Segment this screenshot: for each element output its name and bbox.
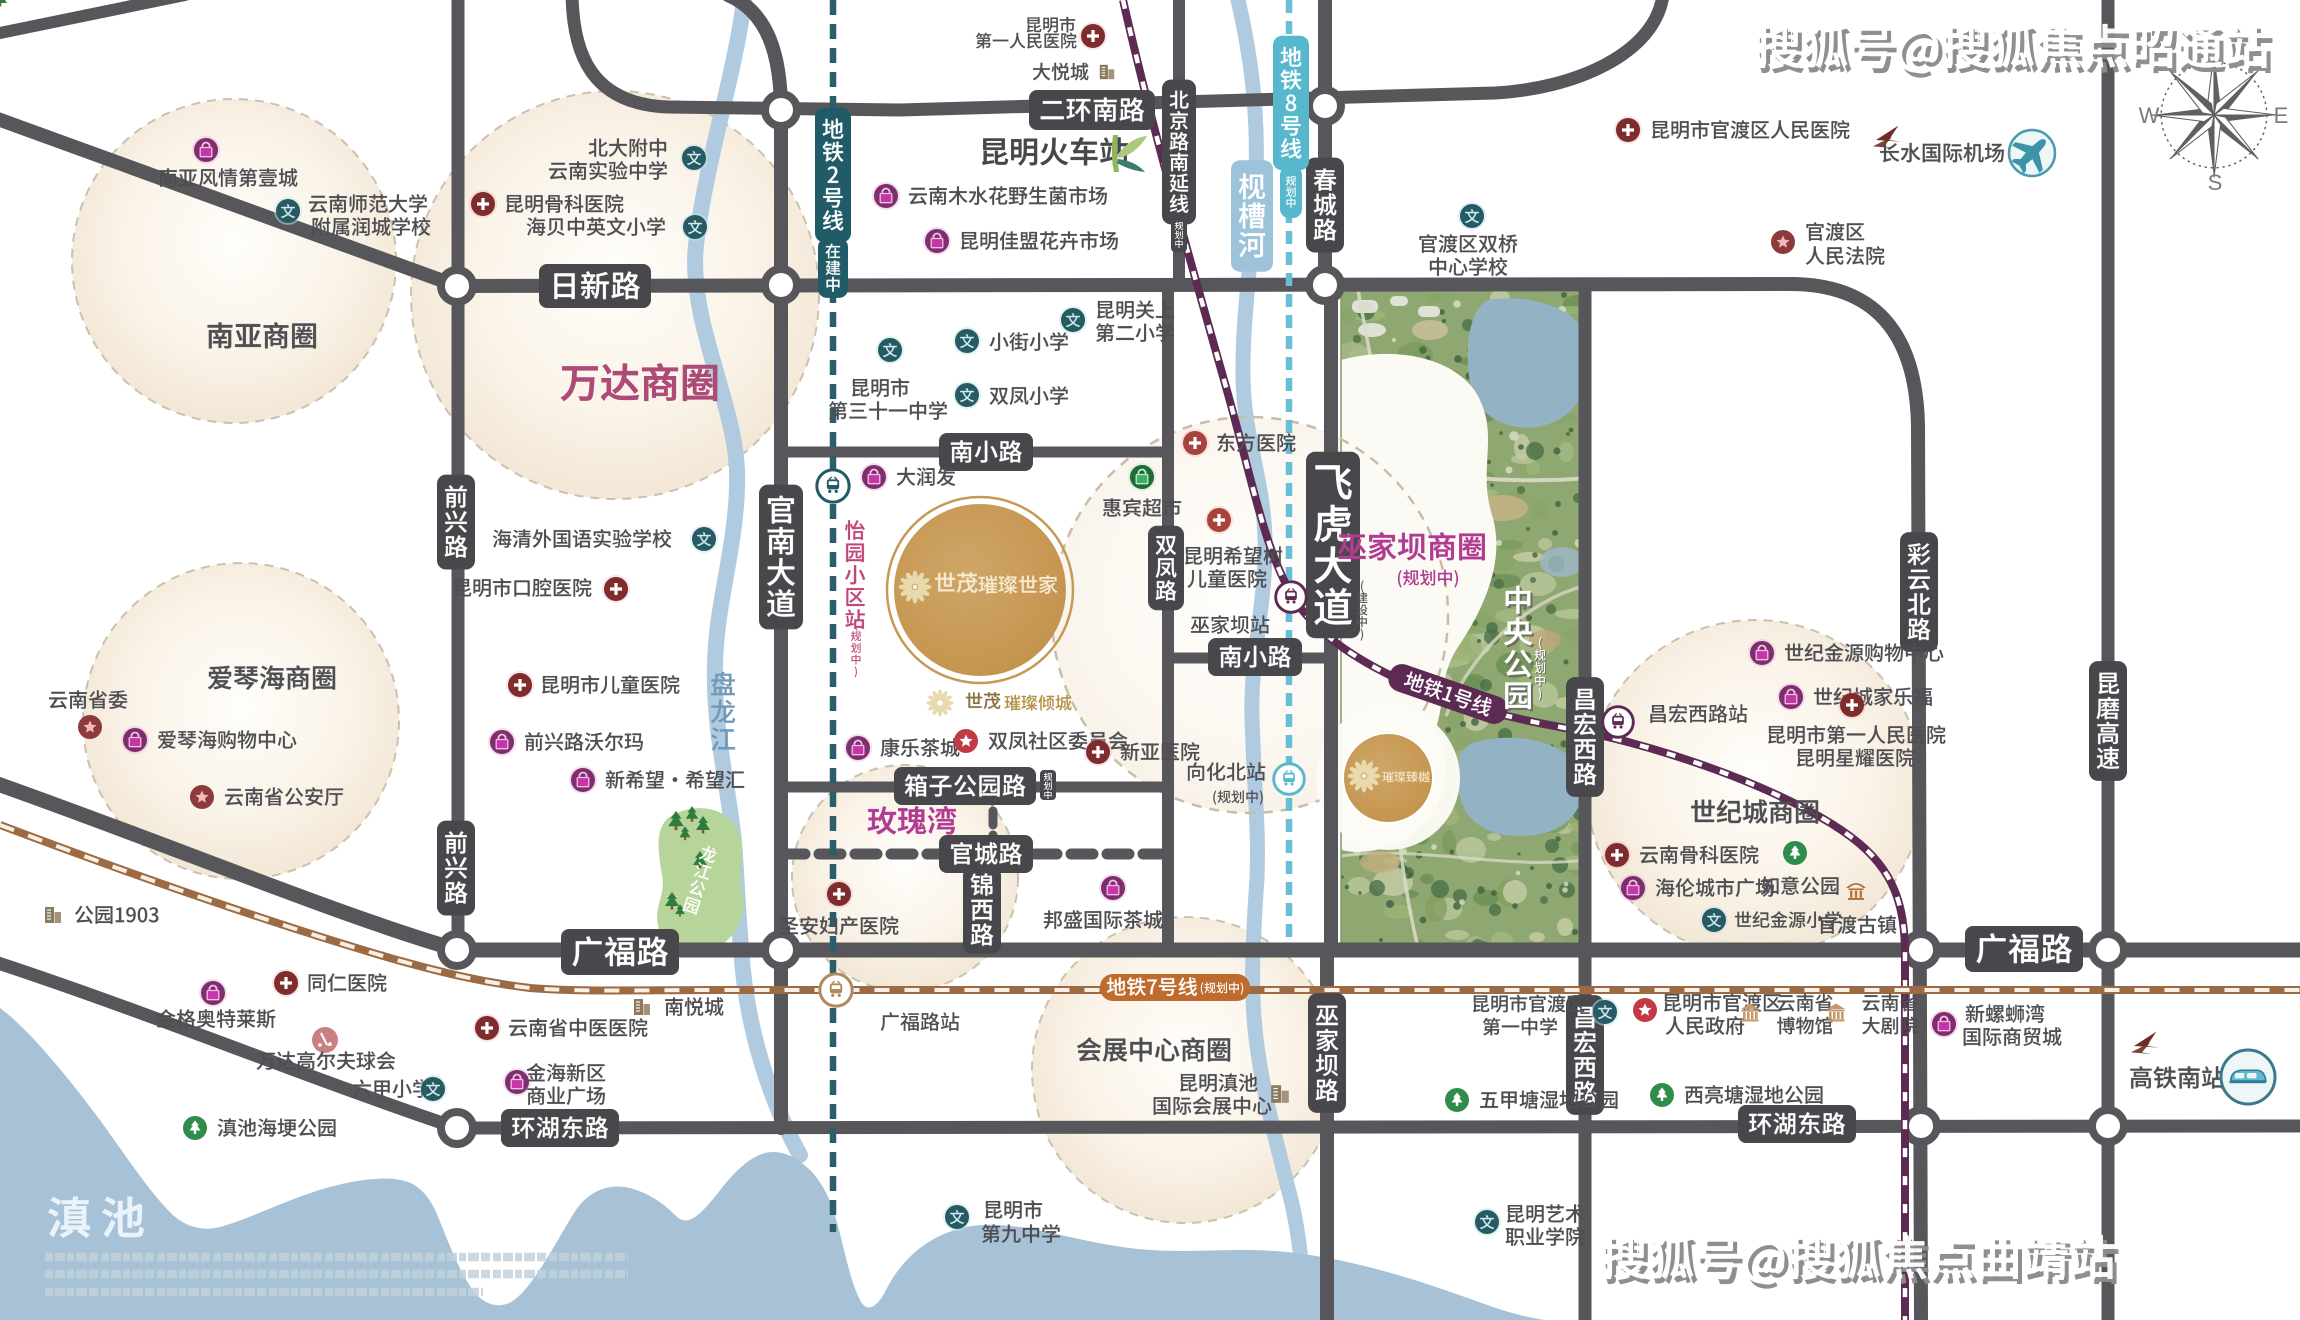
svg-text:W: W (2139, 103, 2160, 128)
svg-text:S: S (2208, 170, 2223, 195)
svg-text:E: E (2274, 103, 2289, 128)
